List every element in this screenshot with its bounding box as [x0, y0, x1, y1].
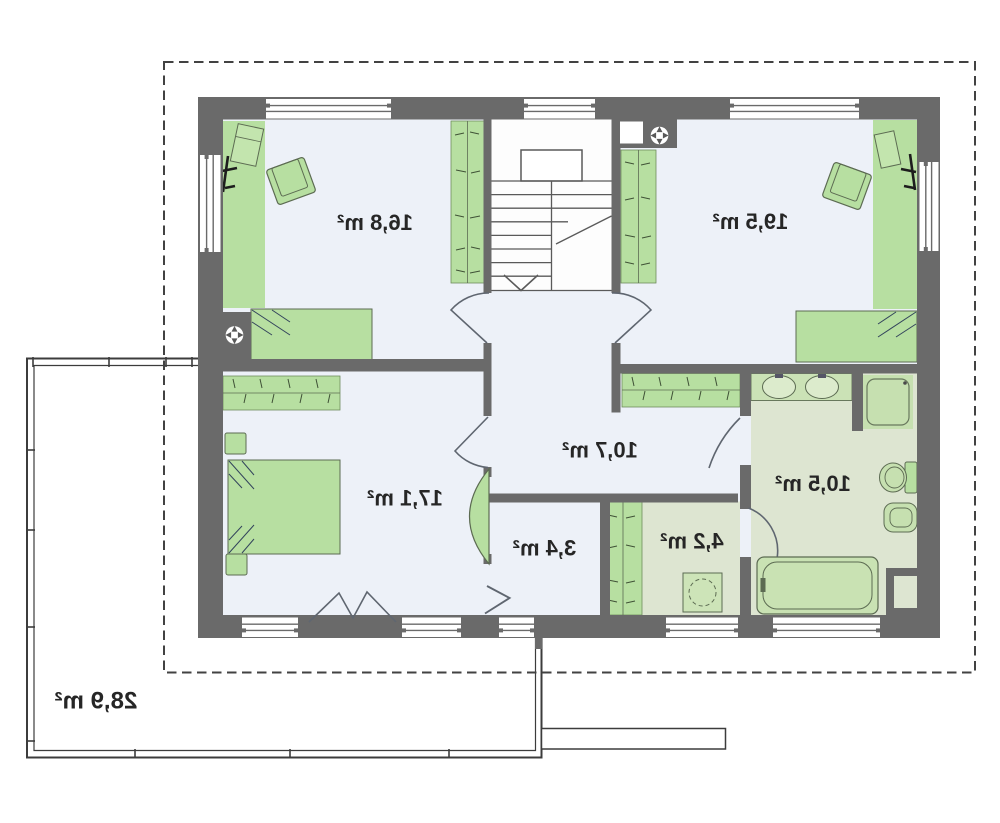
svg-text:17,1 m²: 17,1 m² [367, 486, 443, 511]
svg-text:16,8 m²: 16,8 m² [337, 210, 413, 235]
svg-text:28,9 m²: 28,9 m² [55, 688, 138, 715]
svg-text:10,7 m²: 10,7 m² [562, 438, 638, 463]
svg-text:3,4 m²: 3,4 m² [513, 536, 577, 561]
svg-text:19,5 m²: 19,5 m² [713, 209, 789, 234]
svg-text:10,5 m²: 10,5 m² [775, 471, 851, 496]
svg-text:4,2 m²: 4,2 m² [660, 529, 724, 554]
